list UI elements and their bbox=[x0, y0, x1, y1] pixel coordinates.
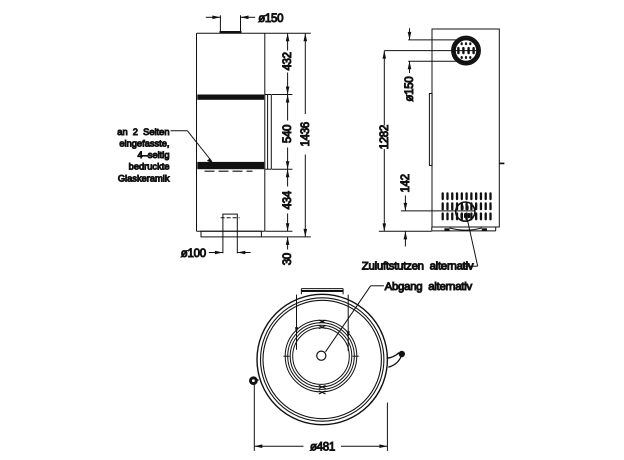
svg-text:ø100: ø100 bbox=[181, 248, 206, 260]
svg-text:bedruckte: bedruckte bbox=[129, 162, 170, 172]
svg-text:ø150: ø150 bbox=[404, 77, 416, 102]
svg-text:1282: 1282 bbox=[379, 125, 391, 149]
svg-text:432: 432 bbox=[282, 52, 294, 70]
svg-text:1436: 1436 bbox=[300, 122, 312, 146]
svg-text:Zuluftstutzen alternativ: Zuluftstutzen alternativ bbox=[362, 261, 474, 273]
svg-text:an 2 Seiten: an 2 Seiten bbox=[117, 127, 169, 137]
svg-text:eingefasste,: eingefasste, bbox=[119, 139, 169, 149]
svg-text:142: 142 bbox=[400, 174, 412, 192]
svg-text:ø150: ø150 bbox=[258, 13, 283, 25]
svg-text:ø481: ø481 bbox=[310, 442, 335, 454]
svg-text:4–seitig: 4–seitig bbox=[137, 150, 169, 160]
svg-text:540: 540 bbox=[282, 125, 294, 143]
svg-text:30: 30 bbox=[282, 253, 294, 265]
svg-text:434: 434 bbox=[282, 190, 294, 209]
svg-text:Glaskeramik: Glaskeramik bbox=[118, 173, 170, 183]
svg-text:Abgang alternativ: Abgang alternativ bbox=[385, 281, 473, 293]
